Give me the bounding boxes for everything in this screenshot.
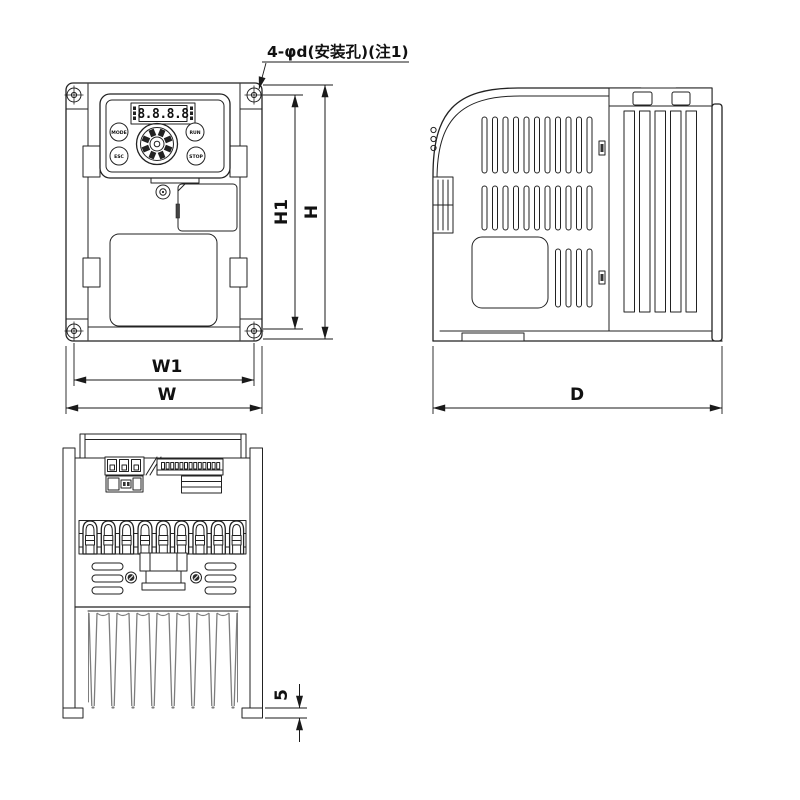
bottom-lip bbox=[462, 333, 524, 341]
dim-label-h1: H1 bbox=[272, 199, 292, 225]
stop-button-label: STOP bbox=[189, 154, 203, 160]
control-terminals bbox=[105, 457, 223, 493]
power-terminals bbox=[79, 521, 246, 555]
label-plate bbox=[182, 476, 222, 493]
front-view: 8.8.8.8 MODE RUN ESC STOP bbox=[65, 83, 264, 341]
display-value: 8.8.8.8 bbox=[137, 107, 189, 122]
dimension-d: D bbox=[433, 346, 722, 414]
right-foot bbox=[242, 708, 263, 718]
cover-clips bbox=[599, 141, 605, 284]
dimension-w1: W1 bbox=[74, 343, 254, 386]
side-vent-slots-top bbox=[482, 117, 592, 173]
dim-label-h: H bbox=[302, 205, 322, 219]
front-cover bbox=[110, 234, 217, 326]
dim-label-w: W bbox=[158, 385, 177, 405]
dimension-foot-height: 5 bbox=[265, 684, 307, 742]
dim-label-w1: W1 bbox=[152, 357, 183, 377]
dim-label-d: D bbox=[570, 385, 584, 405]
drawing-page: 8.8.8.8 MODE RUN ESC STOP bbox=[0, 0, 800, 800]
top-cap bbox=[80, 434, 246, 458]
mounting-hole-annotation: 4-φd(安装孔)(注1) bbox=[259, 42, 409, 89]
bottom-view bbox=[63, 434, 263, 718]
cover-screw bbox=[156, 185, 170, 199]
vfd-dimension-drawing: 8.8.8.8 MODE RUN ESC STOP bbox=[0, 0, 800, 800]
cable-clamp bbox=[140, 553, 187, 590]
heatsink-side bbox=[609, 88, 722, 341]
terminal-flap bbox=[176, 184, 237, 231]
annotation-label: 4-φd(安装孔)(注1) bbox=[267, 42, 409, 61]
side-view bbox=[431, 88, 722, 341]
dim-label-foot: 5 bbox=[272, 689, 292, 701]
esc-button-label: ESC bbox=[114, 154, 124, 160]
heatsink-fins bbox=[89, 613, 238, 709]
side-bracket bbox=[433, 177, 453, 233]
left-foot bbox=[63, 708, 83, 718]
mode-button-label: MODE bbox=[111, 130, 126, 136]
display-indicator-left bbox=[133, 107, 136, 121]
dimension-h1: H1 bbox=[263, 95, 303, 329]
side-vent-slots-middle bbox=[482, 186, 592, 230]
back-plate bbox=[712, 104, 722, 341]
side-vent-slots-bottom bbox=[556, 249, 593, 307]
side-blank-panel bbox=[472, 237, 548, 308]
keypad-panel: 8.8.8.8 MODE RUN ESC STOP bbox=[100, 94, 230, 183]
display-indicator-right bbox=[190, 107, 193, 121]
run-button-label: RUN bbox=[189, 130, 200, 136]
